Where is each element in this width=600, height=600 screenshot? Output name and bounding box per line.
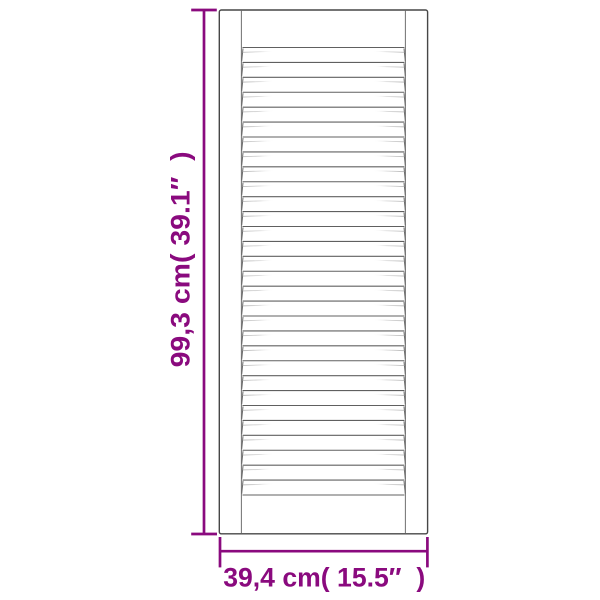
svg-text:39,4 cm( 15.5″ ): 39,4 cm( 15.5″ ) [223,562,425,592]
svg-text:99,3 cm( 39.1″ ): 99,3 cm( 39.1″ ) [166,151,196,367]
